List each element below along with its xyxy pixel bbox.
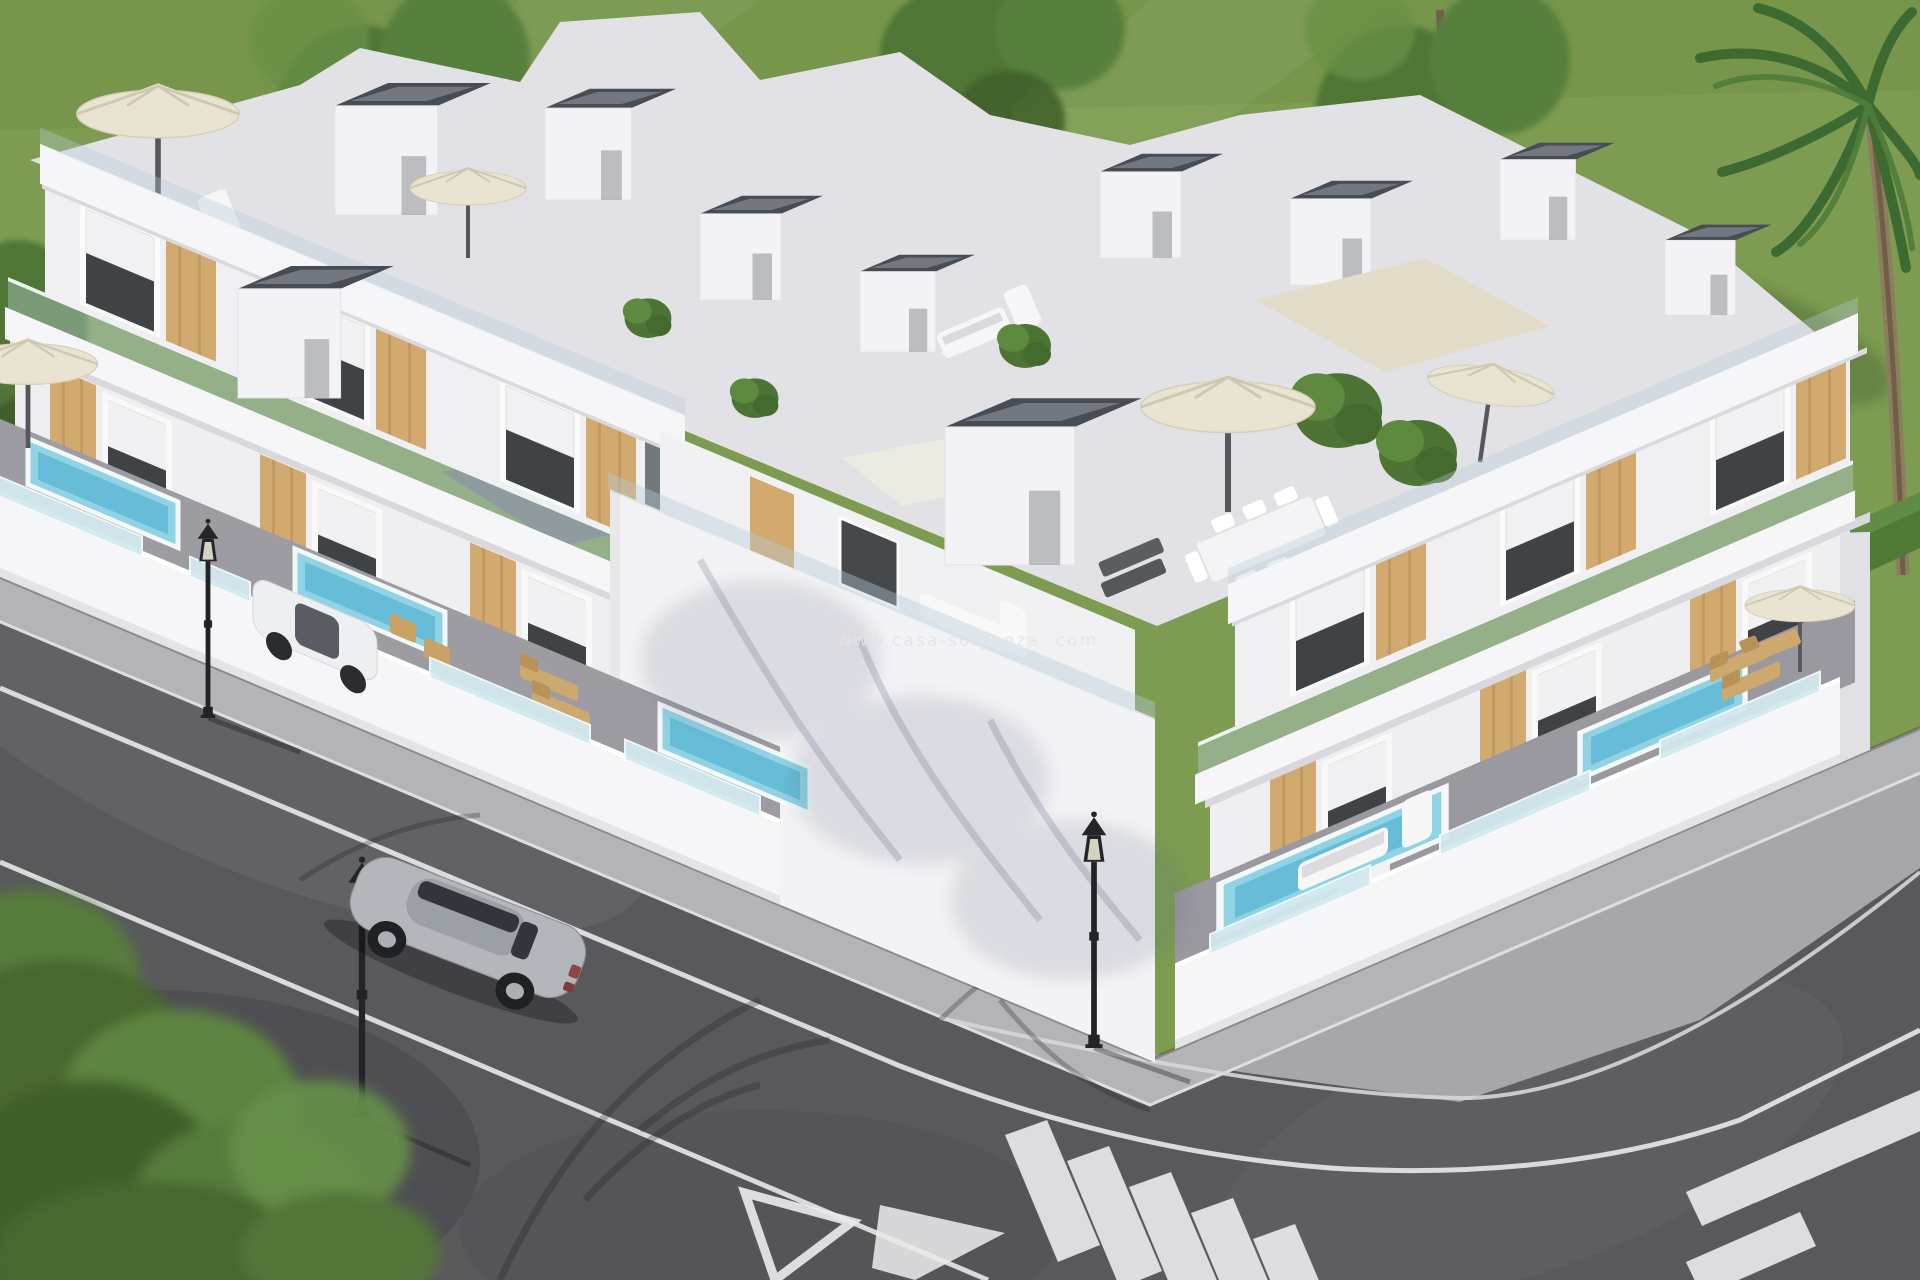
render-scene: www.casa-solyanza .com — [0, 0, 1920, 1280]
render-image: www.casa-solyanza .com — [0, 0, 1920, 1280]
watermark-text: www.casa-solyanza .com — [838, 631, 1099, 651]
